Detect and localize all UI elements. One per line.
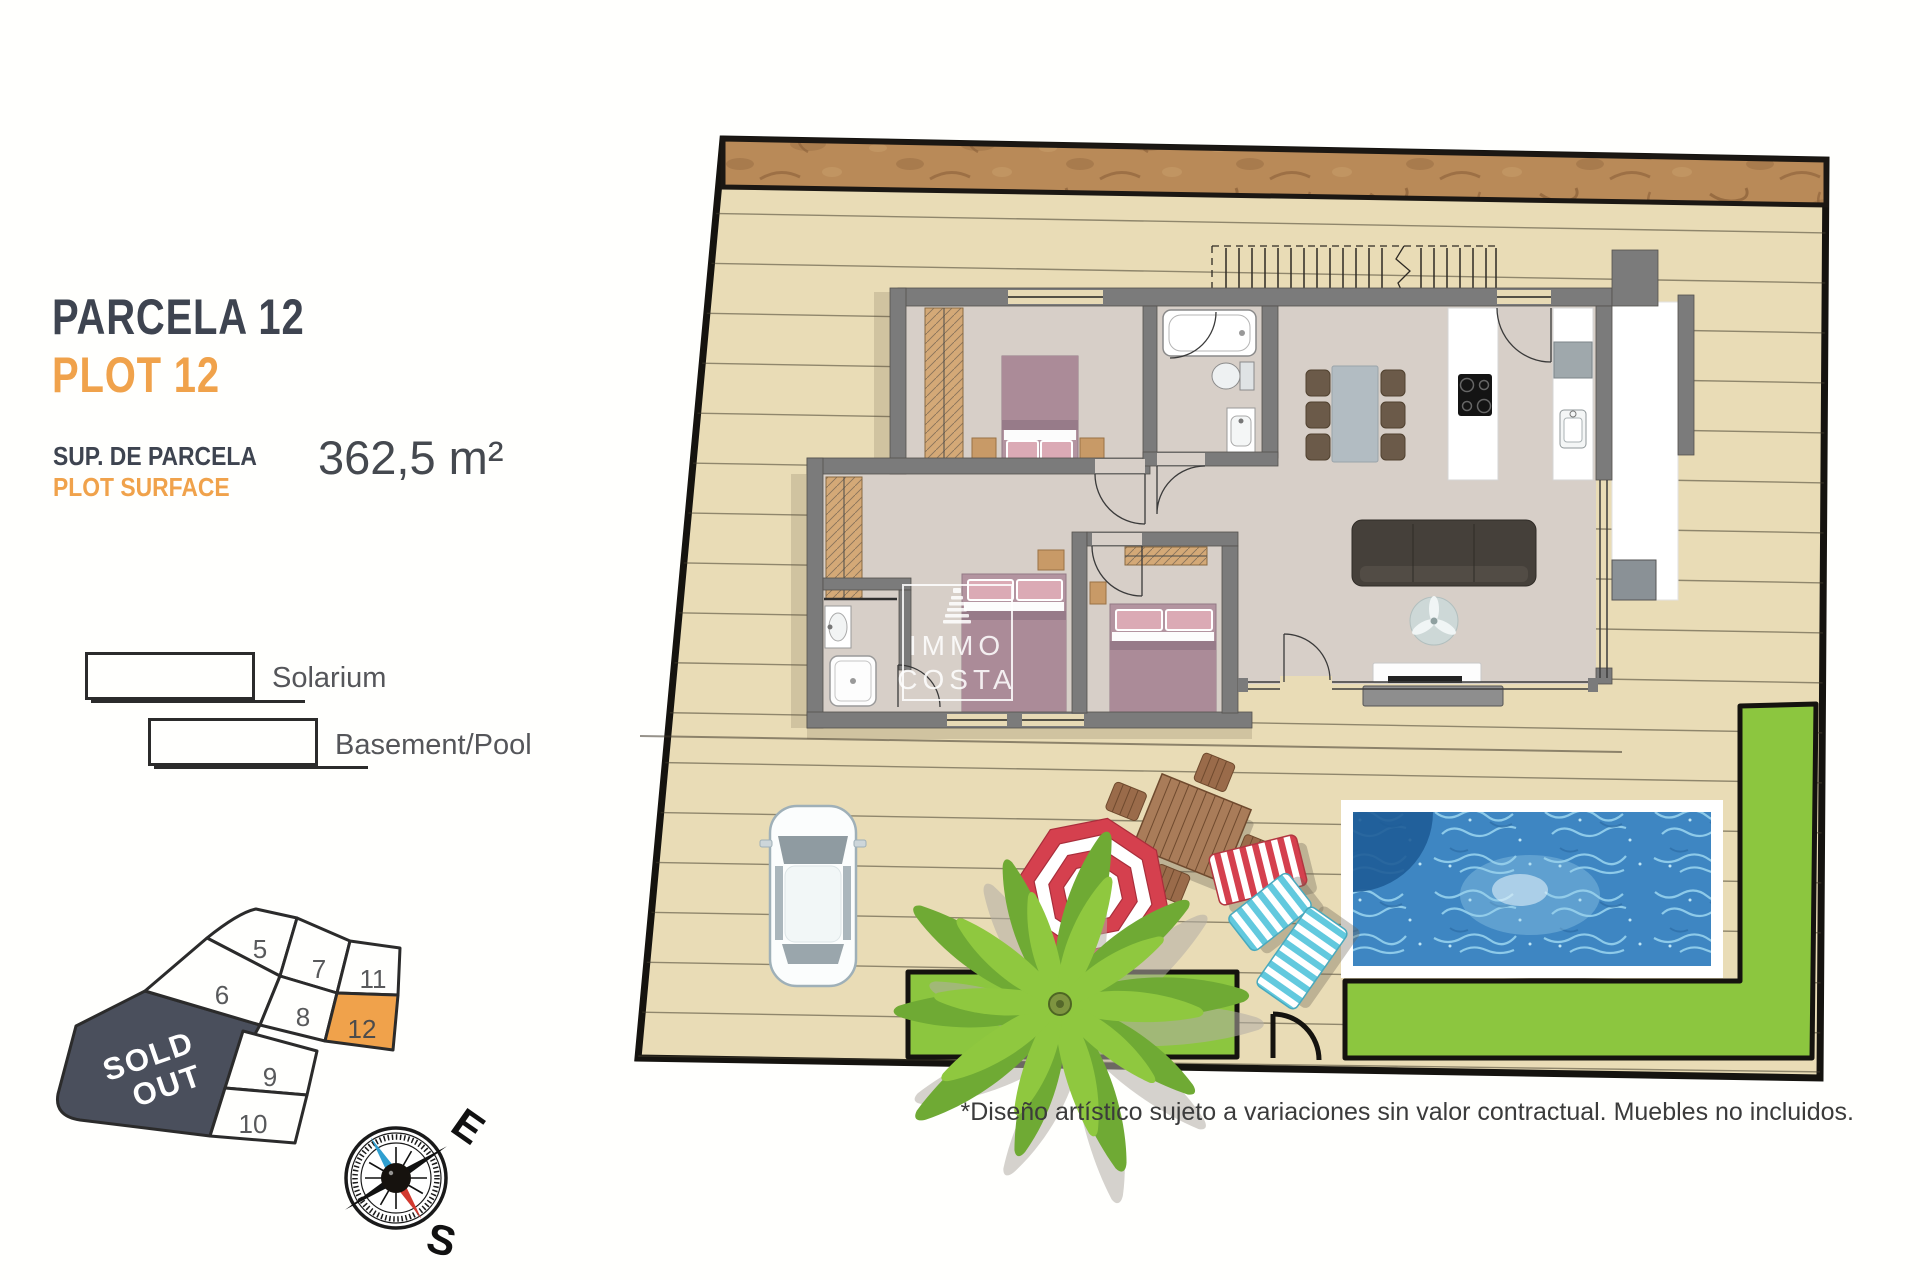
kitchen-counter xyxy=(1553,308,1593,480)
terrace-block xyxy=(1612,560,1656,600)
page: PARCELA 12 PLOT 12 SUP. DE PARCELA PLOT … xyxy=(0,0,1920,1280)
floor-plan: IMMO COSTA xyxy=(0,0,1920,1280)
toilet-bowl xyxy=(1212,363,1240,389)
nightstand xyxy=(1090,582,1106,604)
house: IMMO COSTA xyxy=(791,250,1694,739)
sofa xyxy=(1352,520,1536,586)
dining-table xyxy=(1332,366,1378,462)
toilet-tank xyxy=(1240,362,1254,390)
kitchen-appliance xyxy=(1554,342,1592,378)
disclaimer-text: *Diseño artístico sujeto a variaciones s… xyxy=(960,1098,1854,1127)
watermark-line2: COSTA xyxy=(897,664,1016,695)
ceiling-fan xyxy=(1410,596,1458,645)
watermark-line1: IMMO xyxy=(909,630,1005,661)
side-terrace xyxy=(1612,302,1678,600)
nightstand xyxy=(1038,550,1064,570)
car xyxy=(760,806,866,986)
dining-set xyxy=(1306,366,1405,462)
